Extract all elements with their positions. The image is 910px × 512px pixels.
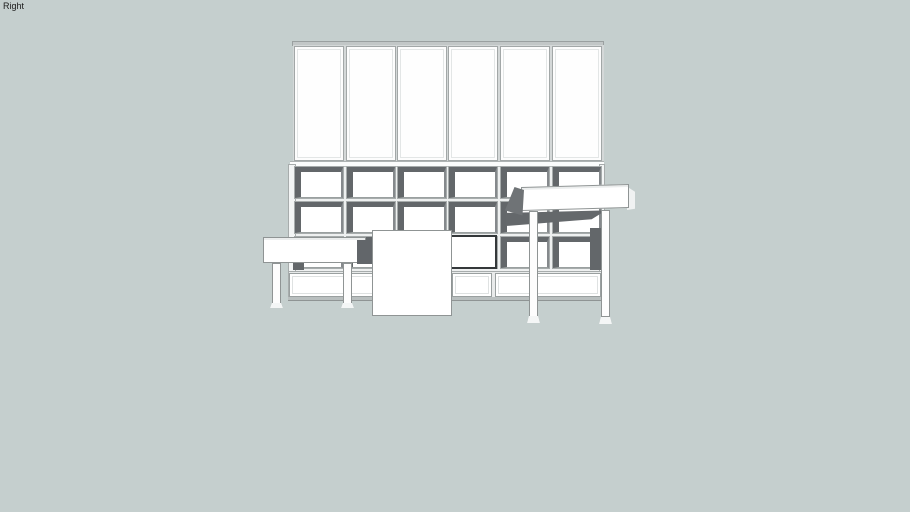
left-table-foot (341, 303, 354, 308)
left-table-end-cap (357, 240, 373, 264)
left-table-leg[interactable] (272, 263, 281, 305)
cubby-cell[interactable] (500, 236, 550, 269)
right-table-foot (599, 317, 612, 324)
right-table-top[interactable] (521, 184, 629, 211)
left-table-top[interactable] (263, 237, 366, 263)
viewport-3d-canvas[interactable]: Right (0, 0, 910, 512)
right-table-foot (527, 316, 540, 323)
left-table-foot (270, 303, 283, 308)
cubby-recess-shadow (449, 167, 497, 198)
cubby-recess-shadow (295, 202, 343, 233)
cubby-recess-shadow (398, 167, 446, 198)
right-table-leg[interactable] (601, 210, 610, 317)
cubby-recess-shadow (295, 167, 343, 198)
cubby-cell[interactable] (294, 201, 344, 234)
cubby-cell[interactable] (397, 166, 447, 199)
cubby-recess-shadow (449, 202, 497, 233)
right-table-leg[interactable] (529, 211, 538, 317)
cabinet-door-panel[interactable] (397, 46, 447, 161)
cubby-cell[interactable] (448, 166, 498, 199)
open-cubby-dark-outline[interactable] (449, 235, 497, 269)
cubby-recess-shadow (501, 237, 549, 268)
cubby-recess-shadow (347, 202, 395, 233)
cabinet-door-panel[interactable] (448, 46, 498, 161)
center-sliding-panel[interactable] (372, 230, 452, 316)
cabinet-door-panel[interactable] (294, 46, 344, 161)
recess-shadow-peek (293, 263, 304, 270)
cabinet-door-panel[interactable] (552, 46, 602, 161)
cubby-cell[interactable] (346, 166, 396, 199)
left-table-leg[interactable] (343, 263, 352, 305)
cubby-recess-shadow (347, 167, 395, 198)
view-label: Right (3, 1, 24, 12)
cabinet-door-panel[interactable] (500, 46, 550, 161)
cubby-cell[interactable] (294, 166, 344, 199)
cubby-recess-shadow (398, 202, 446, 233)
cabinet-door-panel[interactable] (346, 46, 396, 161)
bottom-drawer-panel[interactable] (495, 273, 601, 297)
cubby-cell[interactable] (448, 201, 498, 234)
bottom-drawer-panel[interactable] (452, 273, 492, 297)
